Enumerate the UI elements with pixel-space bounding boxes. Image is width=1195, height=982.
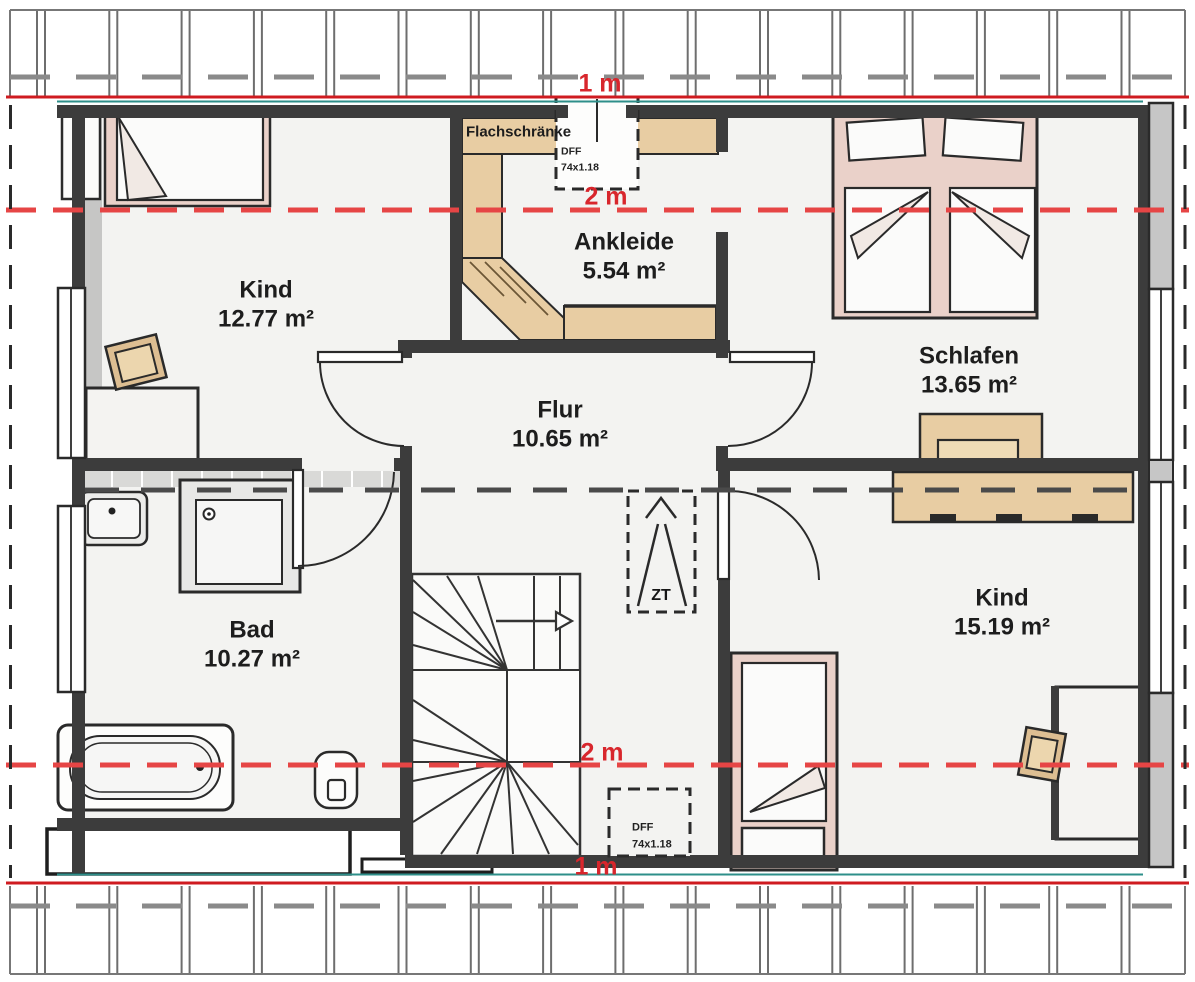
roof-rafters-bottom xyxy=(37,886,1130,974)
door-leaf xyxy=(730,352,814,362)
height-mark-bottom-1m: 1 m xyxy=(574,853,617,882)
room-label-kind-top-left: Kind 12.77 m² xyxy=(218,276,314,335)
room-name: Flur xyxy=(512,396,608,425)
room-area: 15.19 m² xyxy=(954,613,1050,642)
toilet xyxy=(315,752,357,808)
door-leaf xyxy=(718,489,729,579)
gable-wall-segment xyxy=(1149,460,1173,482)
room-area: 12.77 m² xyxy=(218,305,314,334)
room-name: Bad xyxy=(204,616,300,645)
room-name: Schlafen xyxy=(919,342,1019,371)
room-area: 10.27 m² xyxy=(204,645,300,674)
floor-plan: Kind 12.77 m² Ankleide 5.54 m² Schlafen … xyxy=(0,0,1195,982)
gable-wall-segment xyxy=(1149,693,1173,867)
door-leaf xyxy=(318,352,402,362)
wardrobe xyxy=(893,472,1133,522)
door-leaf xyxy=(293,470,303,568)
staircase xyxy=(412,574,580,856)
bed-double xyxy=(833,114,1037,318)
bed-single-top-left xyxy=(62,110,270,206)
height-mark-mid-2m: 2 m xyxy=(580,739,623,768)
room-label-bad: Bad 10.27 m² xyxy=(204,616,300,675)
height-mark-top-2m: 2 m xyxy=(584,183,627,212)
room-label-flur: Flur 10.65 m² xyxy=(512,396,608,455)
roof-hatch-label: ZT xyxy=(651,587,671,605)
room-label-kind-bottom-right: Kind 15.19 m² xyxy=(954,584,1050,643)
room-area: 13.65 m² xyxy=(919,371,1019,400)
room-label-ankleide: Ankleide 5.54 m² xyxy=(574,228,674,287)
room-area: 10.65 m² xyxy=(512,425,608,454)
room-label-schlafen: Schlafen 13.65 m² xyxy=(919,342,1019,401)
roof-window-code: DFF xyxy=(632,820,672,837)
desk-top-left xyxy=(86,388,198,462)
room-area: 5.54 m² xyxy=(574,257,674,286)
bed-single-bottom-right xyxy=(731,653,837,870)
gable-wall-segment xyxy=(1149,103,1173,289)
roof-window-code: DFF xyxy=(561,144,599,160)
shower xyxy=(180,480,300,592)
chair-bottom-right xyxy=(1018,727,1066,781)
sink xyxy=(80,492,147,545)
room-name: Kind xyxy=(954,584,1050,613)
flat-cabinets-label: Flachschränke xyxy=(466,124,571,141)
roof-window-top-label: DFF 74x1.18 xyxy=(561,144,599,176)
roof-window-bottom-label: DFF 74x1.18 xyxy=(632,820,672,853)
room-name: Ankleide xyxy=(574,228,674,257)
stair-landing xyxy=(507,670,580,762)
height-mark-top-1m: 1 m xyxy=(578,70,621,99)
roof-window-size: 74x1.18 xyxy=(632,836,672,853)
roof-window-size: 74x1.18 xyxy=(561,160,599,176)
room-name: Kind xyxy=(218,276,314,305)
